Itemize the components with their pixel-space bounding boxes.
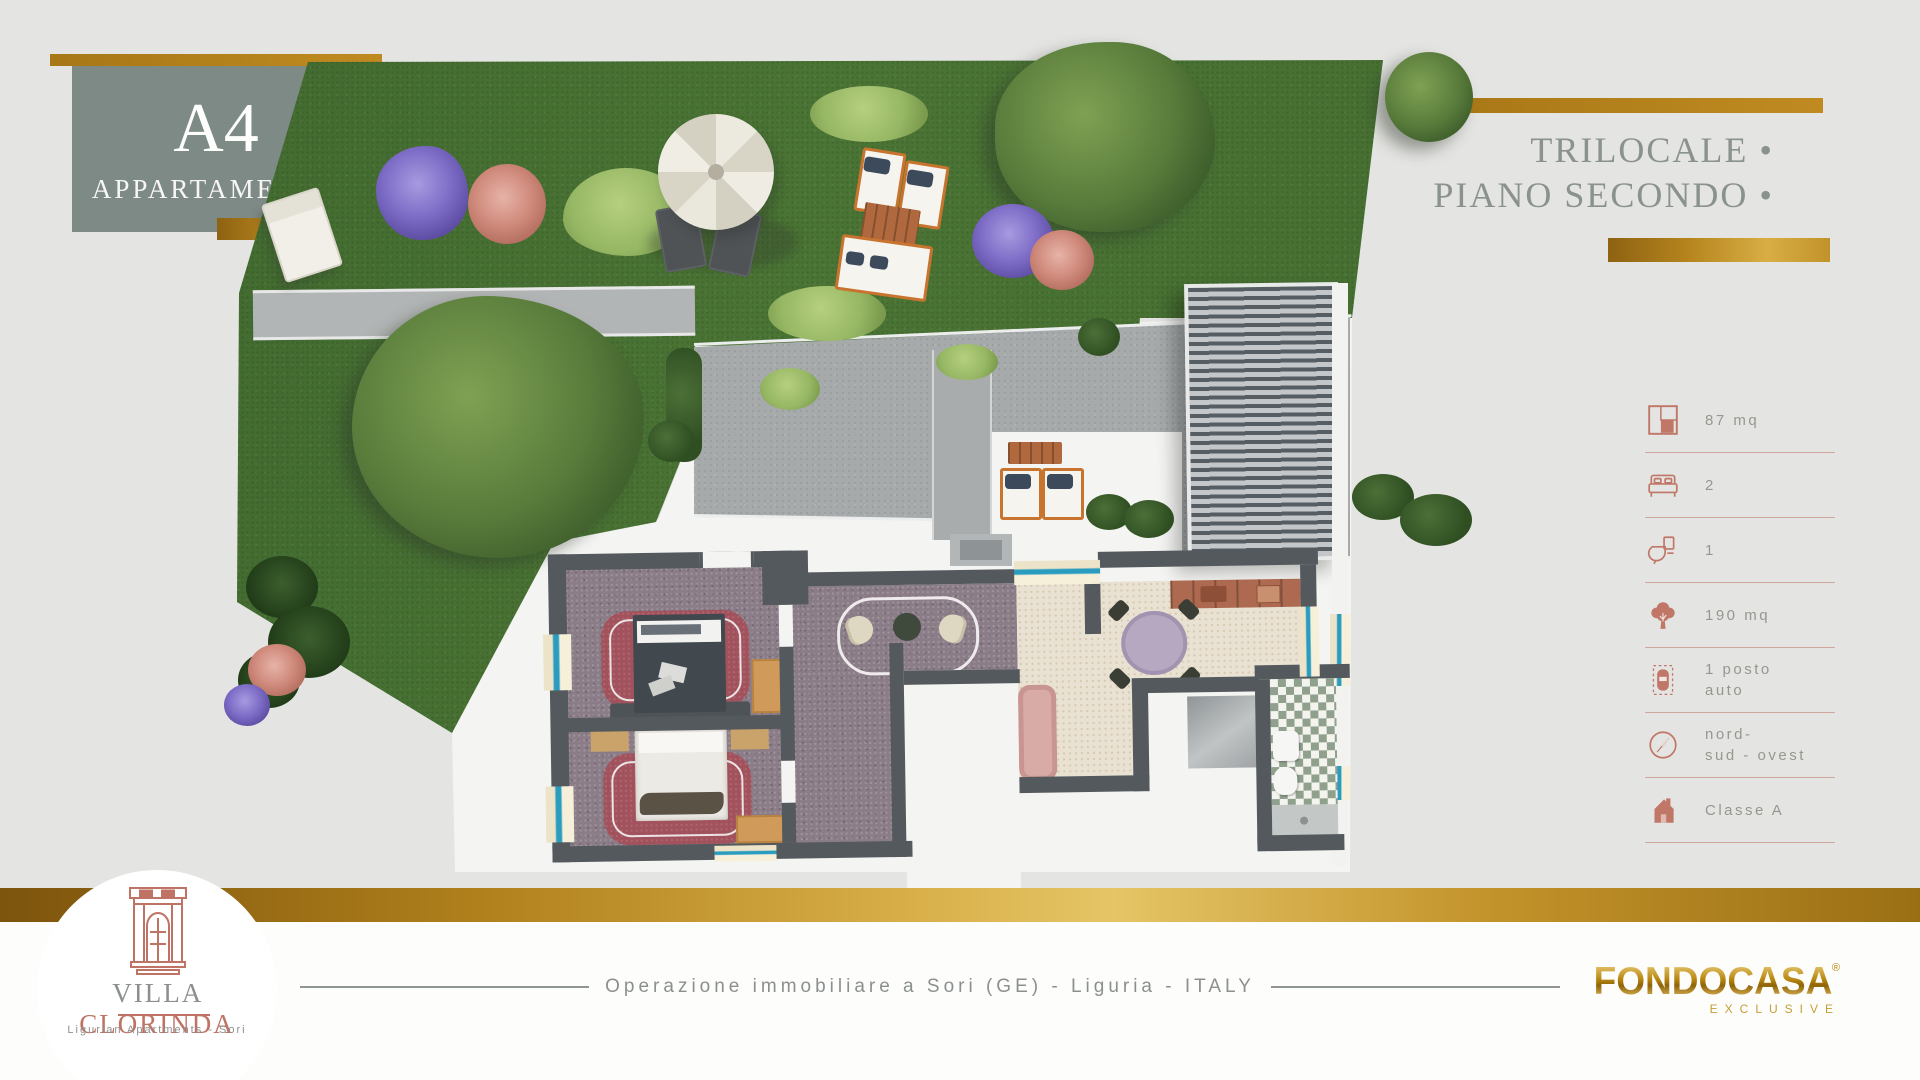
lounger-pillow <box>1047 474 1073 489</box>
registered-mark: ® <box>1832 962 1840 974</box>
window-sill <box>545 786 574 842</box>
villa-clorinda-door-icon <box>118 884 198 976</box>
window-sill <box>543 634 572 690</box>
wall <box>1255 679 1273 845</box>
bathrooms-icon <box>1645 532 1681 568</box>
window-sill <box>714 845 776 862</box>
bathroom-sink <box>1273 731 1299 761</box>
bed2-pillows <box>639 732 723 753</box>
stairwell <box>1187 695 1257 768</box>
bush <box>1124 500 1174 538</box>
small-tree <box>1385 52 1473 142</box>
bedrooms-icon <box>1645 467 1681 503</box>
door-opening <box>779 605 794 647</box>
agency-subtitle: EXCLUSIVE <box>1560 1002 1840 1016</box>
brand-underline <box>118 1014 210 1016</box>
large-tree <box>995 42 1215 232</box>
spec-value: nord- sud - ovest <box>1705 724 1806 766</box>
sofa <box>1018 685 1058 782</box>
bed1-headboard-shelf <box>641 624 701 635</box>
garden-area-icon <box>1645 597 1681 633</box>
spec-row-orientation: nord- sud - ovest <box>1645 713 1835 778</box>
agency-logo: FONDOCASA® EXCLUSIVE <box>1560 962 1840 1016</box>
spec-row-parking: 1 posto auto <box>1645 648 1835 713</box>
nightstand <box>731 727 769 750</box>
lounger-pillow <box>1005 474 1031 489</box>
nightstand <box>591 729 629 752</box>
spec-row-garden-area: 190 mq <box>1645 583 1835 648</box>
lounger-pillow <box>869 255 889 270</box>
wall <box>1084 582 1101 634</box>
spec-value: 87 mq <box>1705 410 1759 431</box>
floor-area-icon <box>1645 402 1681 438</box>
umbrella-pole <box>708 164 724 180</box>
hedge <box>1400 494 1472 546</box>
orientation-icon <box>1645 727 1681 763</box>
parking-icon <box>1645 662 1681 698</box>
door-opening <box>781 761 796 803</box>
spec-value: 2 <box>1705 475 1716 496</box>
footer-gold-band <box>0 888 1920 922</box>
spec-value: Classe A <box>1705 800 1784 821</box>
wood-table <box>1008 442 1062 464</box>
window-sill <box>1014 560 1100 585</box>
wall <box>1019 775 1149 793</box>
brand-subtitle: Ligurian Apartments - Sori <box>17 1024 297 1036</box>
door-opening <box>700 551 754 568</box>
spec-value: 1 posto auto <box>1705 659 1772 701</box>
spec-value: 1 <box>1705 540 1716 561</box>
pink-plant <box>1030 230 1094 290</box>
wall <box>1300 564 1317 612</box>
apartment-floorplan <box>540 536 1375 879</box>
kitchen-sink <box>1256 585 1280 603</box>
pergola-louvers <box>1184 282 1342 562</box>
spec-panel: 87 mq 2 1 190 mq 1 posto auto <box>1645 388 1835 843</box>
bed2-throw <box>640 792 724 815</box>
purple-flowers <box>376 146 468 240</box>
wall <box>904 669 1020 685</box>
bush <box>648 420 694 462</box>
grass-tuft <box>760 368 820 410</box>
toilet <box>1273 767 1297 795</box>
pink-plant <box>468 164 546 244</box>
footer-tagline: Operazione immobiliare a Sori (GE) - Lig… <box>300 976 1560 998</box>
energy-class-icon <box>1645 792 1681 828</box>
divider-line <box>1271 986 1560 988</box>
lounger-pillow <box>845 251 865 266</box>
courtyard-void <box>904 683 1021 891</box>
spec-row-energy-class: Classe A <box>1645 778 1835 843</box>
grass-tuft <box>936 344 998 380</box>
bush <box>810 86 928 142</box>
bush <box>768 286 886 341</box>
wardrobe <box>736 815 784 844</box>
wall <box>1098 548 1318 567</box>
divider-line <box>300 986 589 988</box>
wall <box>1257 834 1344 851</box>
window-sill <box>1299 606 1320 676</box>
purple-flowers <box>224 684 270 726</box>
spec-value: 190 mq <box>1705 605 1770 626</box>
brand-word-villa: VILLA <box>112 978 201 1008</box>
spec-row-bathrooms: 1 <box>1645 518 1835 583</box>
spec-row-bedrooms: 2 <box>1645 453 1835 518</box>
agency-name: FONDOCASA <box>1593 962 1832 1001</box>
spec-row-floor-area: 87 mq <box>1645 388 1835 453</box>
stove <box>1200 586 1226 602</box>
brochure-page: A4 APPARTAMENTO TRILOCALE • PIANO SECOND… <box>0 0 1920 1080</box>
shower-drain <box>1300 817 1308 825</box>
wall <box>1132 676 1259 693</box>
operation-text: Operazione immobiliare a Sori (GE) - Lig… <box>605 976 1255 998</box>
bush <box>1078 318 1120 356</box>
